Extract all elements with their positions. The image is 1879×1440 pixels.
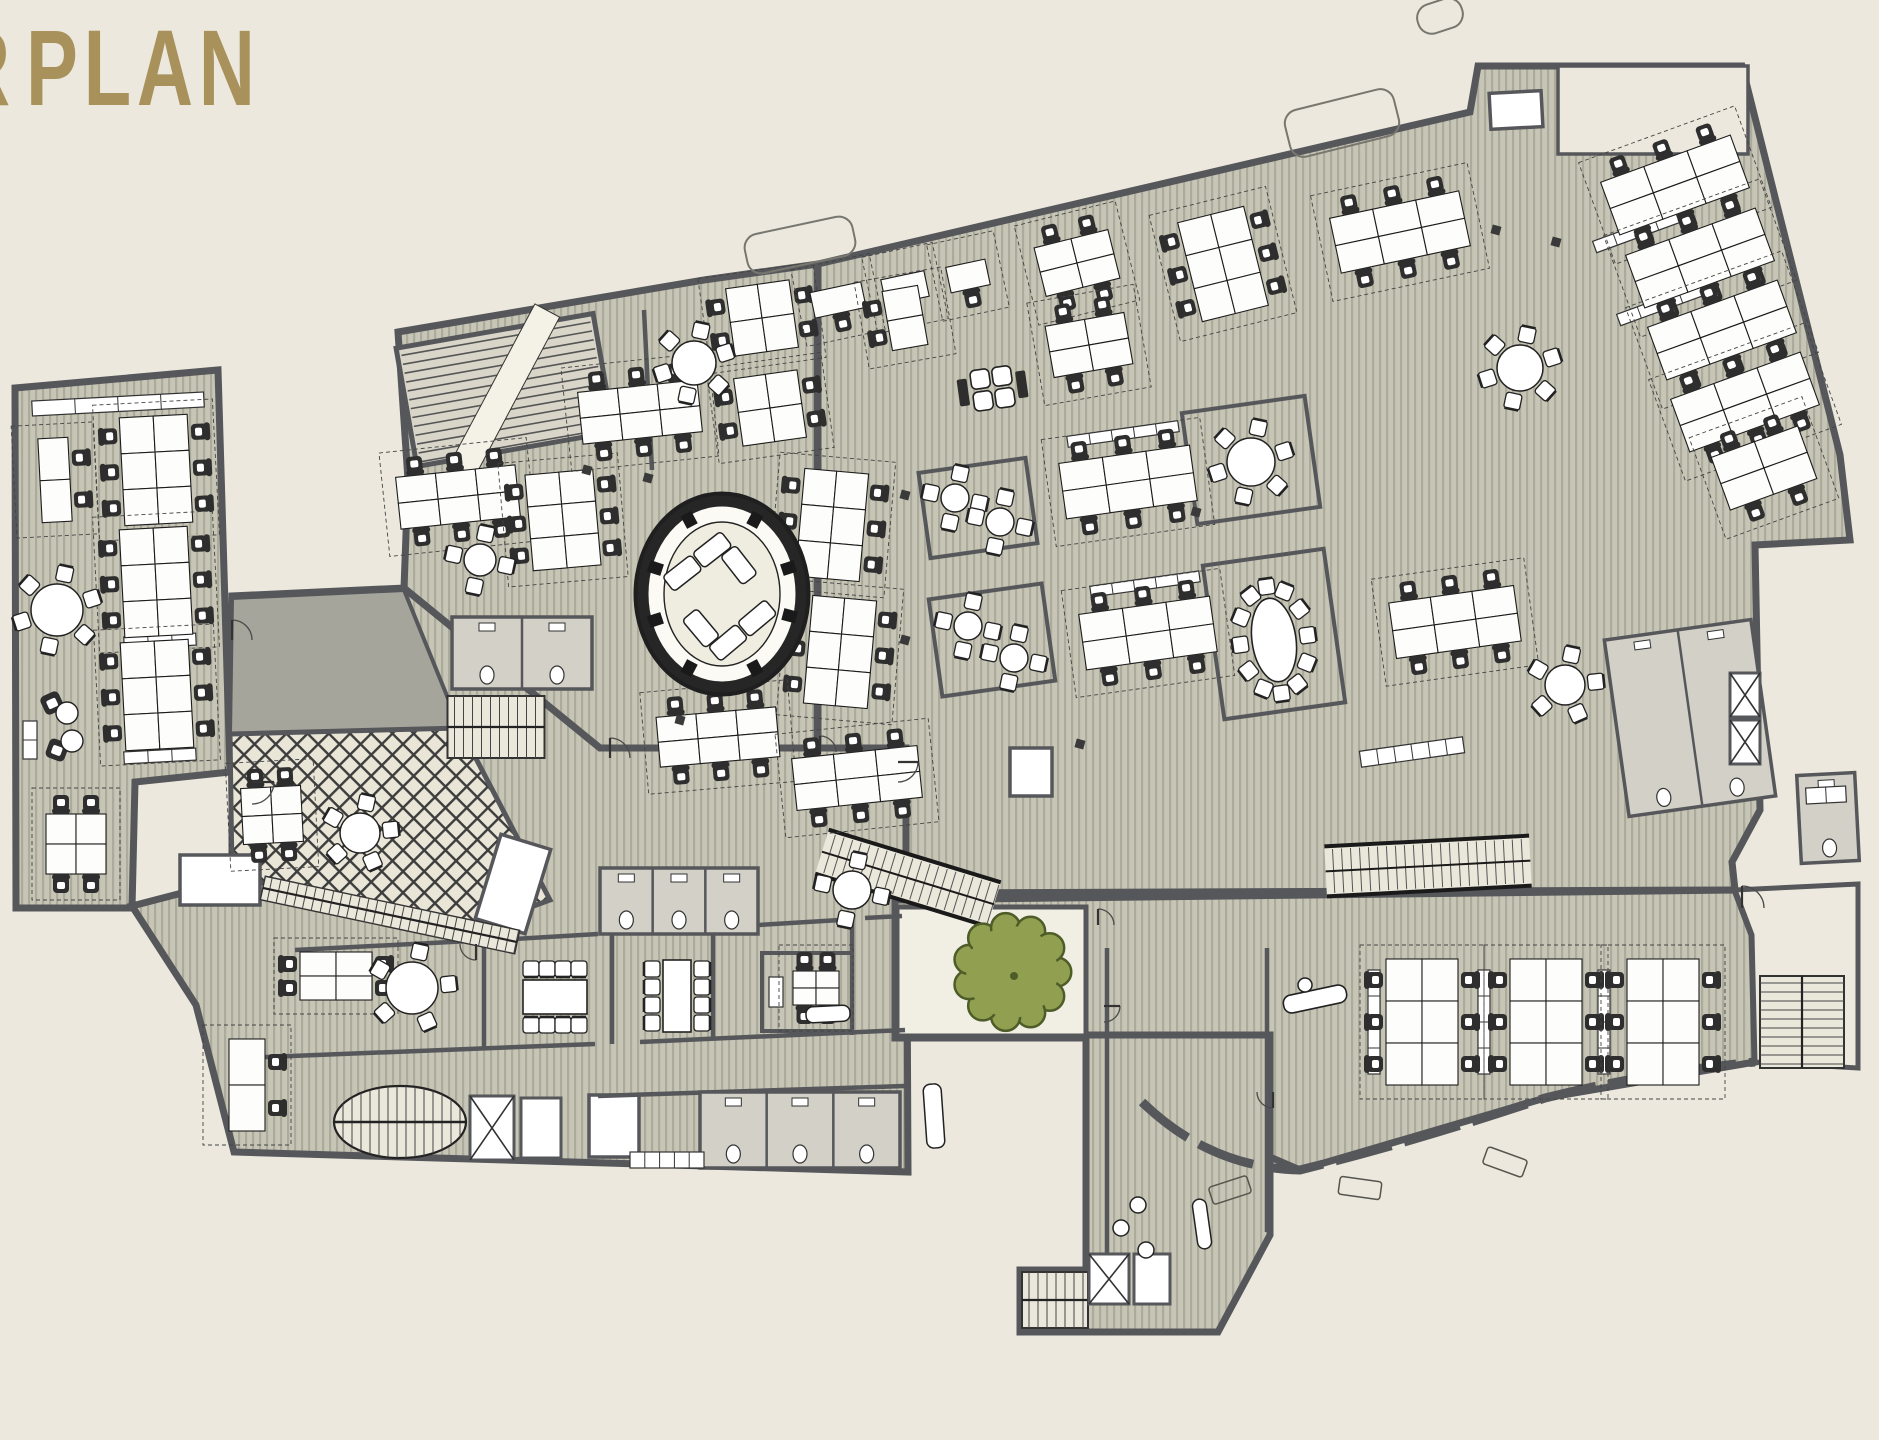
page-title: RPLAN [0, 14, 261, 122]
conference-table [523, 961, 587, 1033]
interior-wall [906, 890, 1735, 893]
staircase [1760, 976, 1844, 1068]
wc-room [1797, 773, 1860, 864]
wc-room [452, 617, 592, 689]
bench-sofa [923, 1083, 945, 1148]
stool [1298, 978, 1312, 992]
elevator [1730, 720, 1760, 764]
shaft [1134, 1254, 1170, 1304]
outdoor-bench [1338, 1176, 1382, 1200]
page-title-partial-letter: R [0, 7, 16, 128]
elevator [1730, 673, 1760, 717]
shaft [521, 1098, 561, 1158]
staircase [1324, 836, 1531, 897]
wc-room [700, 1092, 900, 1168]
room [589, 1095, 639, 1157]
elevator [1089, 1254, 1129, 1304]
cabinet [630, 1152, 704, 1168]
cabinet [1806, 786, 1847, 804]
wc-room [600, 868, 758, 934]
stool [1138, 1242, 1154, 1258]
room [180, 855, 260, 905]
floor-plan-page: RPLAN [0, 0, 1879, 1440]
room [1489, 91, 1543, 130]
elevator [470, 1096, 514, 1160]
oval-meeting-room [636, 494, 808, 694]
cabinet [23, 721, 37, 759]
room [1010, 748, 1052, 796]
outdoor-bench [1482, 1146, 1528, 1177]
cabinet [769, 977, 783, 1007]
stool [1130, 1197, 1146, 1213]
entrance-canopy-outline [1413, 0, 1466, 37]
page-title-text: PLAN [26, 7, 261, 128]
staircase-oval [334, 1086, 466, 1158]
bench-sofa [806, 1005, 851, 1023]
interior-wall [865, 916, 902, 918]
stool [1113, 1220, 1129, 1236]
staircase [448, 696, 545, 758]
staircase [1022, 1272, 1088, 1328]
floor-plan-drawing [0, 0, 1879, 1440]
